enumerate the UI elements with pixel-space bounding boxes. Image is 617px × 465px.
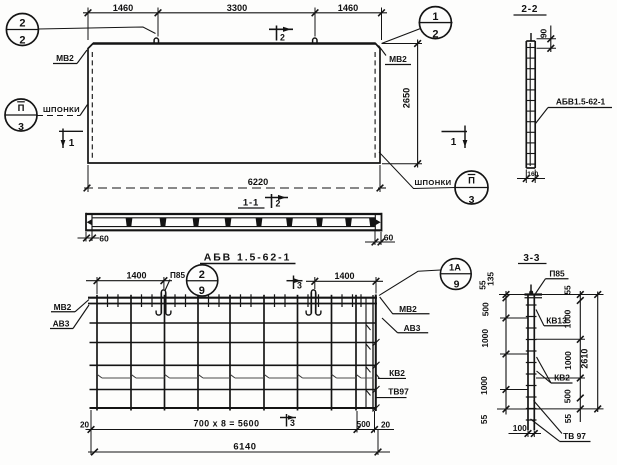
svg-text:1000: 1000 [479,376,489,395]
svg-text:МВ2: МВ2 [54,302,72,312]
svg-text:500: 500 [562,389,572,403]
svg-text:П85: П85 [170,271,185,280]
svg-text:2-2: 2-2 [521,4,538,15]
svg-text:90: 90 [539,29,549,39]
svg-text:2610: 2610 [580,349,590,369]
svg-text:3: 3 [297,281,302,291]
svg-text:АВ3: АВ3 [404,323,421,333]
svg-text:ТВ97: ТВ97 [388,387,409,397]
svg-text:1400: 1400 [334,271,354,281]
svg-text:100: 100 [513,423,527,433]
svg-text:3: 3 [469,194,475,206]
svg-text:1400: 1400 [126,271,146,281]
svg-text:ТВ 97: ТВ 97 [563,431,586,441]
svg-text:1: 1 [69,138,75,149]
svg-text:1460: 1460 [338,3,358,13]
svg-text:55: 55 [479,414,489,424]
svg-text:6140: 6140 [233,441,256,452]
svg-text:160: 160 [527,171,538,178]
svg-text:П: П [18,103,25,114]
svg-text:3300: 3300 [227,3,247,13]
svg-text:60: 60 [384,233,394,243]
svg-text:500: 500 [480,302,490,316]
svg-text:КВ2: КВ2 [389,368,405,378]
svg-text:АБВ1.5-62-1: АБВ1.5-62-1 [556,97,606,107]
svg-text:2: 2 [432,29,438,41]
svg-text:1000: 1000 [480,329,490,348]
svg-text:20: 20 [80,421,90,430]
svg-text:55: 55 [563,414,573,424]
svg-text:2: 2 [199,269,205,281]
svg-text:2: 2 [276,199,281,209]
svg-text:55: 55 [562,285,572,295]
svg-text:МВ2: МВ2 [56,53,74,63]
svg-text:9: 9 [454,279,460,291]
svg-text:500: 500 [357,420,371,429]
svg-text:1А: 1А [449,263,461,273]
svg-text:1460: 1460 [113,3,133,13]
svg-text:1000: 1000 [563,351,573,370]
svg-text:9: 9 [199,285,205,297]
svg-text:1-1: 1-1 [243,198,259,209]
svg-text:П: П [468,176,475,187]
svg-text:АВ3: АВ3 [53,319,70,329]
svg-text:АБВ 1.5-62-1: АБВ 1.5-62-1 [204,252,292,264]
svg-text:2: 2 [19,35,25,47]
svg-text:20: 20 [381,421,391,430]
svg-text:55: 55 [478,280,488,290]
svg-text:3: 3 [18,121,24,133]
svg-text:3: 3 [290,418,295,428]
svg-text:1000: 1000 [562,309,572,328]
svg-text:МВ2: МВ2 [399,304,417,314]
svg-text:1: 1 [432,11,438,23]
svg-text:1: 1 [451,137,457,148]
svg-text:П85: П85 [549,269,565,279]
svg-text:6220: 6220 [248,177,268,187]
svg-text:МВ2: МВ2 [389,54,407,64]
svg-text:ШПОНКИ: ШПОНКИ [43,105,80,114]
svg-text:ШПОНКИ: ШПОНКИ [415,178,452,187]
svg-text:2: 2 [280,33,285,43]
svg-text:60: 60 [99,234,109,244]
svg-text:2650: 2650 [402,88,412,108]
svg-text:700 x 8 = 5600: 700 x 8 = 5600 [194,419,260,429]
svg-text:3-3: 3-3 [523,253,540,264]
svg-text:2: 2 [19,18,25,30]
